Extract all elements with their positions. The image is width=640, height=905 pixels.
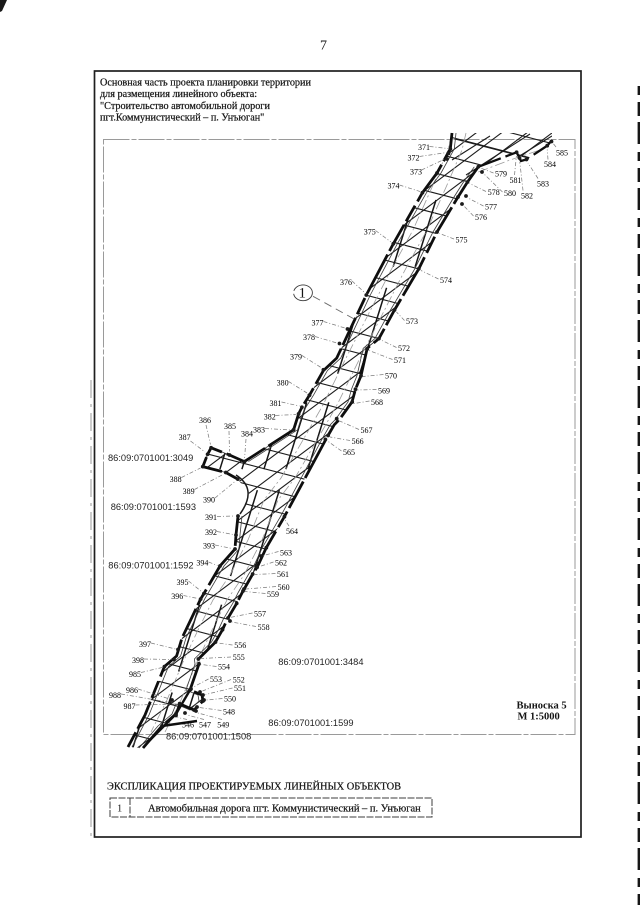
svg-text:986: 986: [126, 686, 138, 695]
svg-text:579: 579: [495, 170, 507, 179]
svg-text:382: 382: [264, 413, 276, 422]
svg-text:546: 546: [182, 721, 194, 730]
svg-text:988: 988: [109, 691, 121, 700]
svg-text:397: 397: [139, 640, 151, 649]
svg-text:ЭКСПЛИКАЦИЯ ПРОЕКТИРУЕМЫХ ЛИНЕ: ЭКСПЛИКАЦИЯ ПРОЕКТИРУЕМЫХ ЛИНЕЙНЫХ ОБЪЕК…: [107, 781, 401, 793]
svg-text:552: 552: [233, 676, 245, 685]
svg-text:М 1:5000: М 1:5000: [518, 712, 560, 723]
svg-text:554: 554: [218, 663, 230, 672]
svg-text:560: 560: [278, 583, 290, 592]
svg-text:557: 557: [254, 610, 266, 619]
svg-text:376: 376: [340, 278, 352, 287]
svg-text:1: 1: [117, 804, 122, 815]
svg-text:570: 570: [385, 371, 397, 380]
svg-text:86:09:0701001:1599: 86:09:0701001:1599: [268, 718, 353, 728]
svg-text:550: 550: [224, 695, 236, 704]
svg-text:391: 391: [205, 513, 217, 522]
svg-text:373: 373: [410, 167, 422, 176]
svg-text:582: 582: [521, 192, 533, 201]
svg-text:для размещения линейного объек: для размещения линейного объекта:: [100, 89, 257, 100]
svg-text:386: 386: [199, 416, 211, 425]
svg-text:Выноска 5: Выноска 5: [517, 700, 567, 711]
svg-text:388: 388: [170, 475, 182, 484]
svg-text:396: 396: [171, 592, 183, 601]
svg-text:569: 569: [378, 386, 390, 395]
svg-text:392: 392: [205, 528, 217, 537]
svg-text:398: 398: [132, 656, 144, 665]
svg-text:385: 385: [224, 422, 236, 431]
svg-text:556: 556: [234, 641, 246, 650]
svg-text:553: 553: [210, 675, 222, 684]
svg-text:572: 572: [398, 344, 410, 353]
svg-text:585: 585: [556, 149, 568, 158]
svg-text:568: 568: [371, 398, 383, 407]
svg-text:387: 387: [179, 433, 191, 442]
svg-text:394: 394: [196, 559, 208, 568]
svg-text:86:09:0701001:1593: 86:09:0701001:1593: [111, 502, 196, 512]
svg-text:575: 575: [456, 236, 468, 245]
svg-text:562: 562: [275, 559, 287, 568]
svg-text:584: 584: [544, 160, 556, 169]
svg-text:378: 378: [303, 333, 315, 342]
svg-text:86:09:0701001:1508: 86:09:0701001:1508: [166, 732, 251, 742]
svg-text:581: 581: [510, 176, 522, 185]
svg-text:555: 555: [233, 653, 245, 662]
svg-text:577: 577: [485, 203, 497, 212]
svg-text:985: 985: [129, 670, 141, 679]
svg-text:381: 381: [270, 399, 282, 408]
svg-text:86:09:0701001:3484: 86:09:0701001:3484: [278, 657, 363, 667]
svg-text:393: 393: [203, 541, 215, 550]
svg-text:571: 571: [394, 356, 406, 365]
svg-text:Основная часть проекта планиро: Основная часть проекта планировки террит…: [100, 78, 311, 89]
svg-text:551: 551: [234, 684, 246, 693]
svg-text:377: 377: [312, 319, 324, 328]
svg-text:379: 379: [290, 352, 302, 361]
svg-text:395: 395: [177, 578, 189, 587]
svg-text:Автомобильная дорога пгт. Комм: Автомобильная дорога пгт. Коммунистическ…: [148, 804, 421, 815]
svg-text:573: 573: [406, 317, 418, 326]
svg-text:580: 580: [504, 189, 516, 198]
svg-text:583: 583: [537, 179, 549, 188]
svg-text:86:09:0701001:3049: 86:09:0701001:3049: [108, 453, 193, 463]
svg-text:383: 383: [253, 425, 265, 434]
svg-text:566: 566: [352, 437, 364, 446]
svg-text:7: 7: [320, 39, 327, 54]
svg-text:375: 375: [364, 227, 376, 236]
svg-text:574: 574: [440, 276, 452, 285]
svg-text:565: 565: [343, 448, 355, 457]
svg-text:561: 561: [277, 570, 289, 579]
svg-text:390: 390: [203, 495, 215, 504]
svg-text:564: 564: [286, 527, 298, 536]
svg-text:372: 372: [408, 154, 420, 163]
svg-text:380: 380: [277, 379, 289, 388]
svg-text:86:09:0701001:1592: 86:09:0701001:1592: [108, 561, 193, 571]
svg-text:389: 389: [183, 487, 195, 496]
svg-text:1: 1: [299, 285, 307, 301]
svg-text:558: 558: [258, 623, 270, 632]
svg-text:987: 987: [124, 702, 136, 711]
svg-text:578: 578: [488, 188, 500, 197]
svg-text:576: 576: [475, 213, 487, 222]
svg-text:548: 548: [223, 707, 235, 716]
svg-text:384: 384: [241, 429, 253, 438]
svg-text:371: 371: [418, 143, 430, 152]
svg-text:пгт.Коммунистический – п. Унъю: пгт.Коммунистический – п. Унъюган": [100, 113, 264, 124]
svg-text:547: 547: [199, 721, 211, 730]
svg-text:563: 563: [280, 548, 292, 557]
svg-text:374: 374: [388, 182, 400, 191]
svg-text:549: 549: [217, 721, 229, 730]
svg-text:567: 567: [361, 426, 373, 435]
svg-text:"Строительство автомобильной д: "Строительство автомобильной дороги: [100, 101, 270, 112]
